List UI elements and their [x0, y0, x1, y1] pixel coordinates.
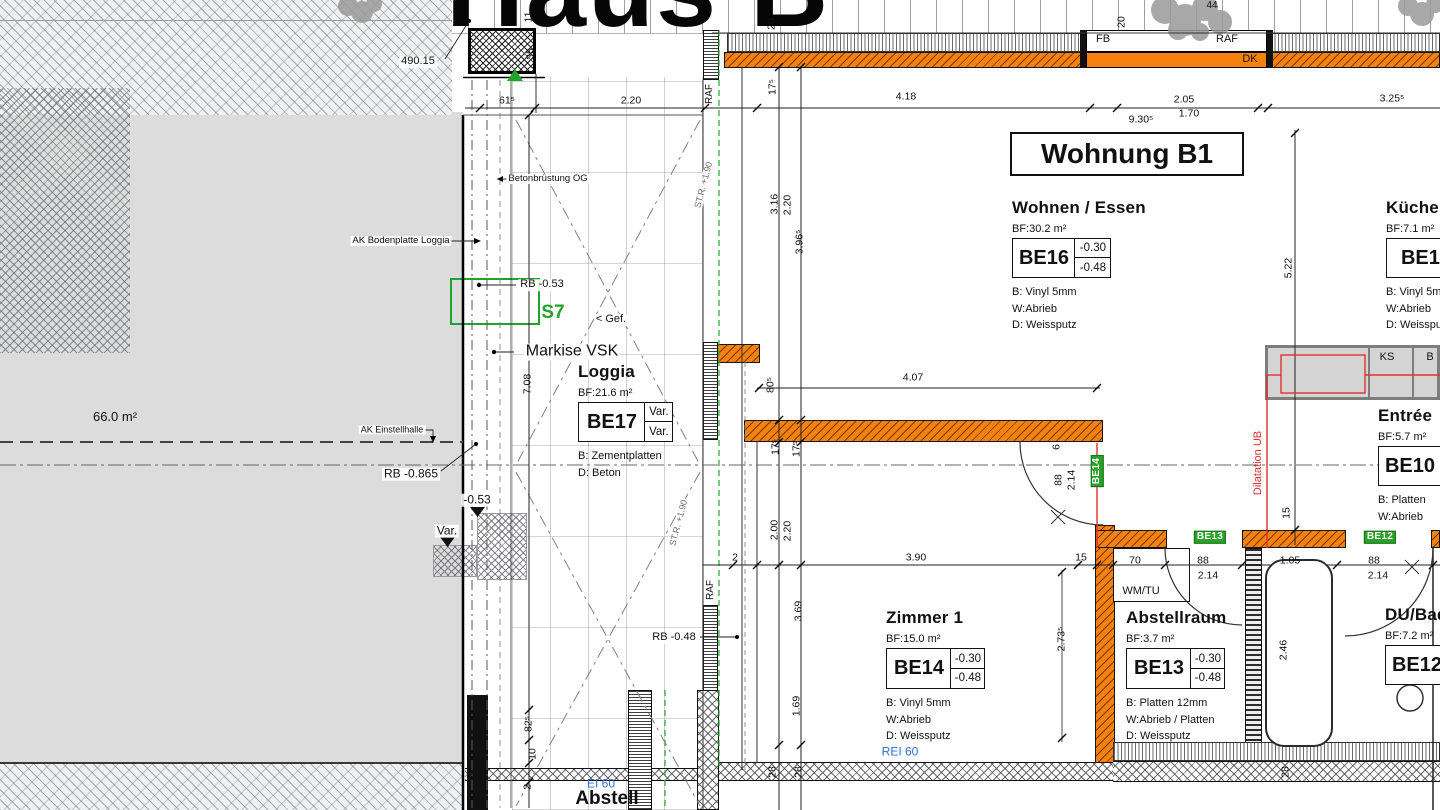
- bathtub: [1266, 560, 1332, 746]
- room-name: Wohnen / Essen: [1012, 198, 1146, 218]
- room-code: BE14: [886, 648, 952, 689]
- room-layer: B: Vinyl 5mm: [1012, 284, 1146, 301]
- room-layer: W:Abrieb: [1012, 301, 1146, 318]
- room-layer: D: Weissputz: [886, 728, 985, 745]
- room-layer: B: Zementplatten: [578, 448, 673, 465]
- room-name: Loggia: [578, 362, 673, 382]
- room-layer: D: Weissputz: [1126, 728, 1226, 745]
- room-card-wohnen: Wohnen / Essen BF:30.2 m² BE16 -0.30 -0.…: [1012, 198, 1146, 334]
- room-level: -0.48: [950, 668, 985, 689]
- door-swings: [1020, 442, 1433, 636]
- room-layer: W:Abrieb: [1378, 509, 1440, 526]
- entry-marker: [507, 69, 523, 81]
- room-layer: B: Platten: [1378, 492, 1440, 509]
- room-name: DU/Bad: [1385, 605, 1440, 625]
- room-card-dubad: DU/Bad BF:7.2 m² BE12: [1385, 605, 1440, 685]
- room-layer: D: Beton: [578, 465, 673, 482]
- room-card-zimmer1: Zimmer 1 BF:15.0 m² BE14 -0.30 -0.48 B: …: [886, 608, 985, 745]
- room-area: BF:7.1 m²: [1386, 223, 1440, 235]
- room-area: BF:5.7 m²: [1378, 431, 1440, 443]
- room-layer: W:Abrieb / Platten: [1126, 712, 1226, 729]
- room-code: BE12: [1385, 645, 1440, 685]
- apartment-title-box: Wohnung B1: [1010, 132, 1244, 176]
- shower-drain: [1397, 685, 1423, 711]
- room-layer: D: Weissputz: [1386, 317, 1440, 334]
- room-card-loggia: Loggia BF:21.6 m² BE17 Var. Var. B: Zeme…: [578, 362, 673, 481]
- room-level: -0.48: [1074, 257, 1111, 278]
- room-level: Var.: [644, 421, 673, 442]
- room-area: BF:7.2 m²: [1385, 630, 1440, 642]
- room-layer: B: Platten 12mm: [1126, 695, 1226, 712]
- building-title: Haus B: [446, 0, 830, 51]
- room-level: -0.30: [1190, 648, 1225, 669]
- room-code: BE13: [1126, 648, 1192, 689]
- room-layer: B: Vinyl 5mm: [886, 695, 985, 712]
- room-name: Entrée: [1378, 406, 1440, 426]
- room-name: Abstellraum: [1126, 608, 1226, 628]
- room-code: BE15: [1386, 238, 1440, 278]
- room-area: BF:21.6 m²: [578, 387, 673, 399]
- room-layer: W:Abrieb: [886, 712, 985, 729]
- room-layer: D: Weissputz: [1012, 317, 1146, 334]
- room-card-abstellraum: Abstellraum BF:3.7 m² BE13 -0.30 -0.48 B…: [1126, 608, 1226, 745]
- room-level: -0.30: [950, 648, 985, 669]
- room-area: BF:3.7 m²: [1126, 633, 1226, 645]
- room-code: BE17: [578, 402, 646, 442]
- room-level: -0.48: [1190, 668, 1225, 689]
- room-card-kueche: Küche BF:7.1 m² BE15 B: Vinyl 5mm W:Abri…: [1386, 198, 1440, 334]
- room-name: Küche: [1386, 198, 1440, 218]
- room-area: BF:30.2 m²: [1012, 223, 1146, 235]
- room-layer: B: Vinyl 5mm: [1386, 284, 1440, 301]
- room-layer: W:Abrieb: [1386, 301, 1440, 318]
- room-level: -0.30: [1074, 238, 1111, 259]
- room-code: BE10: [1378, 446, 1440, 486]
- room-card-entree: Entrée BF:5.7 m² BE10 B: Platten W:Abrie…: [1378, 406, 1440, 525]
- room-level: Var.: [644, 402, 673, 423]
- room-code: BE16: [1012, 238, 1076, 278]
- floor-plan-sheet: Haus B Wohnung B1 Wohnen / Essen BF:30.2…: [0, 0, 1440, 810]
- room-area: BF:15.0 m²: [886, 633, 985, 645]
- room-name: Zimmer 1: [886, 608, 985, 628]
